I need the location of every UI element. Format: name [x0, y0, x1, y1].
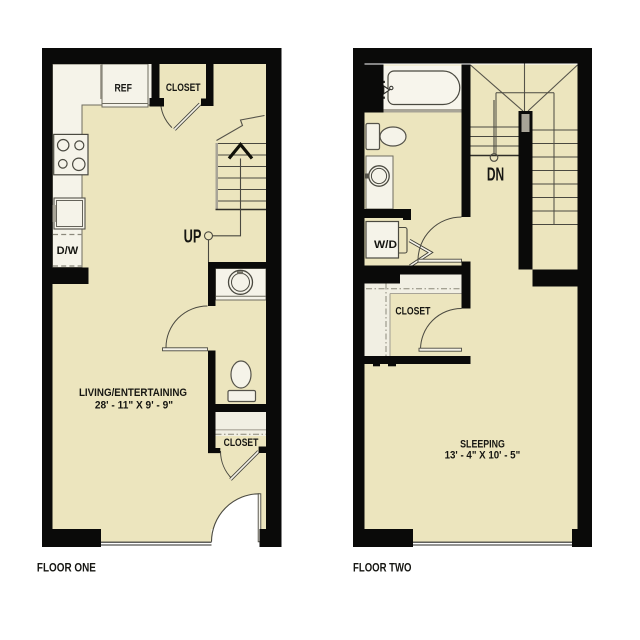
svg-text:28' - 11" X 9' - 9": 28' - 11" X 9' - 9": [95, 399, 173, 411]
svg-text:CLOSET: CLOSET: [224, 437, 259, 449]
svg-text:CLOSET: CLOSET: [395, 306, 430, 318]
svg-text:UP: UP: [184, 226, 202, 247]
svg-text:13' - 4" X 10' - 5": 13' - 4" X 10' - 5": [445, 450, 521, 462]
svg-text:REF: REF: [115, 82, 132, 94]
svg-text:FLOOR TWO: FLOOR TWO: [353, 561, 412, 575]
svg-text:DN: DN: [487, 164, 504, 185]
svg-text:LIVING/ENTERTAINING: LIVING/ENTERTAINING: [79, 387, 187, 399]
svg-text:D/W: D/W: [57, 245, 79, 257]
svg-text:FLOOR ONE: FLOOR ONE: [37, 561, 96, 575]
svg-text:CLOSET: CLOSET: [166, 82, 201, 94]
svg-text:W/D: W/D: [374, 239, 397, 251]
